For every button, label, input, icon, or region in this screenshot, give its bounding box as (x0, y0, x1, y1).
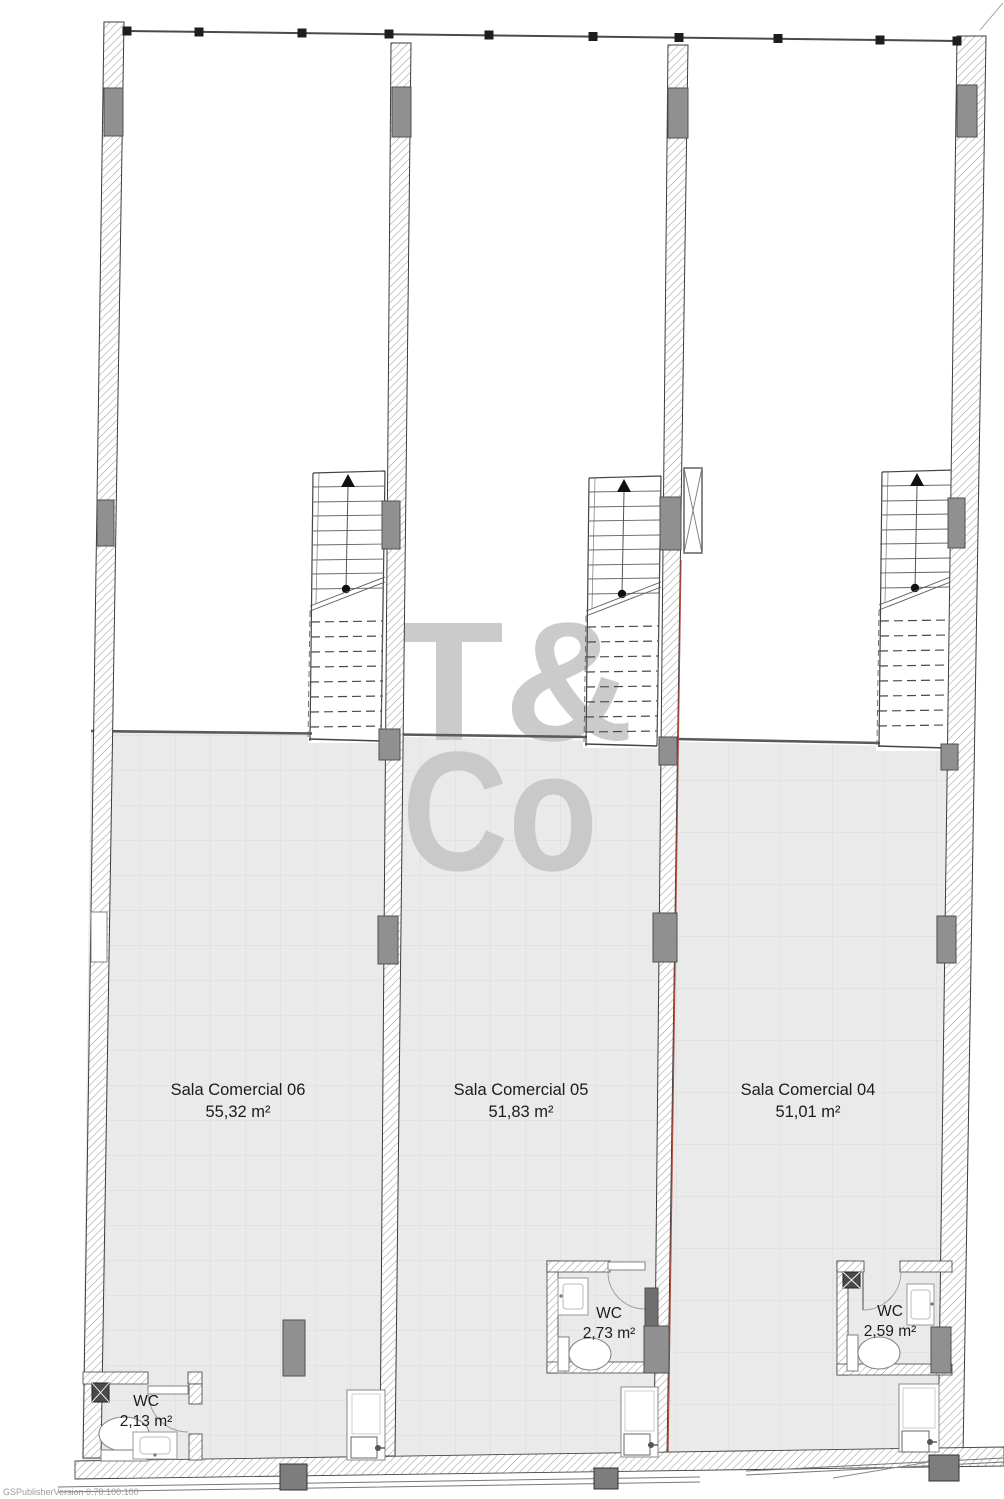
stair1-up-arrow-icon (341, 474, 355, 487)
boundary-marker (195, 28, 204, 37)
column (668, 88, 688, 138)
sink-icon (558, 1278, 588, 1315)
storefront-post-2 (594, 1468, 618, 1489)
toilet-icon (558, 1337, 611, 1371)
column (644, 1326, 669, 1373)
toilet-icon (847, 1335, 900, 1371)
wc-left-area: 2,13 m² (120, 1413, 173, 1430)
column (392, 87, 411, 137)
column (104, 88, 123, 136)
boundary-marker (485, 31, 494, 40)
boundary-marker (123, 27, 132, 36)
column (659, 737, 677, 765)
utility-sink-2 (621, 1387, 658, 1457)
staircase-1 (308, 471, 385, 741)
elevator-shaft (684, 468, 702, 553)
room-06-area: 55,32 m² (205, 1103, 271, 1121)
storefront-post-3 (929, 1455, 959, 1481)
stair3-break-line (879, 576, 953, 610)
room-05-area: 51,83 m² (488, 1103, 554, 1121)
stair1-upper-flight-dashed (310, 621, 383, 727)
floor-plan-drawing: T& Co (0, 0, 1004, 1499)
column (660, 497, 681, 550)
column (97, 500, 114, 546)
boundary-marker (876, 36, 885, 45)
boundary-marker (774, 34, 783, 43)
stair3-upper-flight-dashed (878, 620, 950, 726)
column (653, 913, 677, 962)
storefront-post-1 (280, 1464, 307, 1490)
column (937, 916, 956, 963)
column (957, 85, 977, 137)
wc-left-label: WC (133, 1393, 159, 1410)
column (378, 916, 398, 964)
wall1-niche (91, 912, 107, 962)
wc-right-area: 2,59 m² (864, 1323, 917, 1340)
stair3-floor-patch (876, 735, 950, 751)
room-04-area: 51,01 m² (775, 1103, 841, 1121)
room-05-name: Sala Comercial 05 (454, 1081, 589, 1099)
column (931, 1327, 951, 1373)
column (379, 729, 400, 760)
wc-middle-door-leaf (608, 1262, 645, 1270)
sink-icon (133, 1432, 177, 1459)
column (941, 744, 958, 770)
wc-middle-label: WC (596, 1305, 622, 1322)
boundary-marker (675, 33, 684, 42)
stair2-up-arrow-icon (617, 479, 631, 492)
column (645, 1288, 658, 1326)
floor-tiles-right (672, 741, 947, 1458)
room-04-name: Sala Comercial 04 (741, 1081, 876, 1099)
floor-plan-canvas: T& Co (0, 0, 1004, 1499)
top-boundary (123, 3, 1004, 46)
column (382, 501, 400, 549)
stair3-up-arrow-icon (910, 473, 924, 486)
boundary-marker (298, 29, 307, 38)
column (948, 498, 965, 548)
staircase-3 (877, 470, 953, 748)
utility-sink-3 (899, 1384, 939, 1452)
room-06-name: Sala Comercial 06 (171, 1081, 306, 1099)
watermark-line2: Co (402, 717, 598, 907)
stair1-break-line (310, 577, 385, 611)
wc-right-label: WC (877, 1303, 903, 1320)
boundary-marker (953, 37, 962, 46)
column (283, 1320, 305, 1376)
boundary-marker (385, 30, 394, 39)
sink-icon (907, 1284, 934, 1325)
version-text: GSPublisherVersion 0.78.100.100 (3, 1487, 139, 1497)
boundary-marker (589, 32, 598, 41)
wc-middle-area: 2,73 m² (583, 1325, 636, 1342)
utility-sink-1 (347, 1390, 385, 1460)
